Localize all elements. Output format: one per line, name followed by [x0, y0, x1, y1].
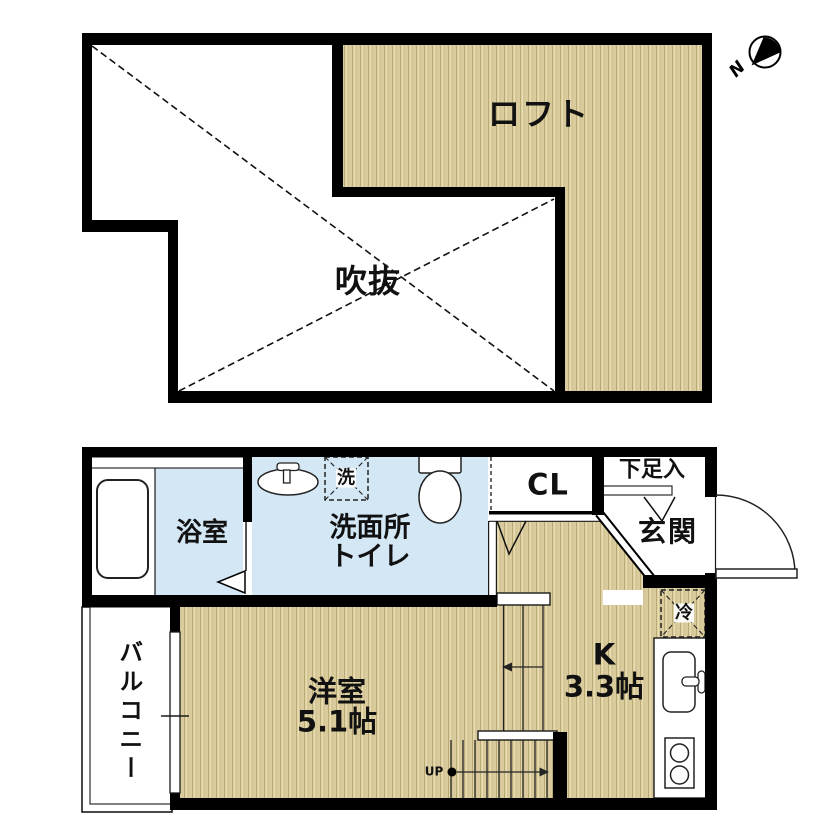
washing-machine-label: 洗	[336, 468, 356, 487]
loft-plan-graphics: N	[82, 33, 781, 403]
stove-icon	[665, 738, 694, 788]
toilet-icon	[419, 452, 461, 523]
closet-bottom-band	[489, 511, 603, 521]
washroom-label: 洗面所 トイレ	[330, 514, 411, 573]
kitchen-label: K 3.3帖	[564, 639, 644, 704]
stairs-up-start-dot	[448, 768, 457, 777]
western-room-size: 5.1帖	[297, 707, 377, 737]
bathtub-icon	[97, 480, 148, 578]
compass-n-label: N	[725, 57, 749, 81]
western-room-label: 洋室 5.1帖	[297, 677, 377, 738]
balcony-label: バルコニー	[115, 640, 140, 785]
kitchen-size: 3.3帖	[564, 671, 644, 703]
western-room-name: 洋室	[297, 677, 377, 707]
closet-label: CL	[527, 470, 569, 501]
entrance-label: 玄関	[638, 517, 698, 547]
stairs-mid-landing	[478, 731, 557, 740]
kitchen-name: K	[564, 639, 644, 671]
loft-label: ロフト	[488, 98, 590, 132]
shoe-storage-label: 下足入	[619, 458, 685, 481]
compass-icon: N	[725, 37, 780, 82]
floorplan-canvas: N	[0, 0, 840, 840]
washroom-label-line2: トイレ	[330, 543, 411, 572]
fridge-label: 冷	[674, 603, 694, 622]
main-plan-graphics	[82, 447, 797, 812]
stairs-up-label: UP	[425, 766, 444, 779]
entrance-door-leaf	[716, 569, 797, 578]
entrance-door-swing	[716, 495, 798, 578]
entrance-door-arc	[716, 495, 795, 574]
void-label: 吹抜	[335, 265, 401, 299]
bath-window	[88, 457, 245, 468]
shoe-cabinet-shelf	[603, 486, 672, 495]
washroom-label-line1: 洗面所	[330, 514, 411, 543]
stairs-top-landing	[497, 593, 550, 605]
bath-room-label: 浴室	[176, 520, 228, 548]
